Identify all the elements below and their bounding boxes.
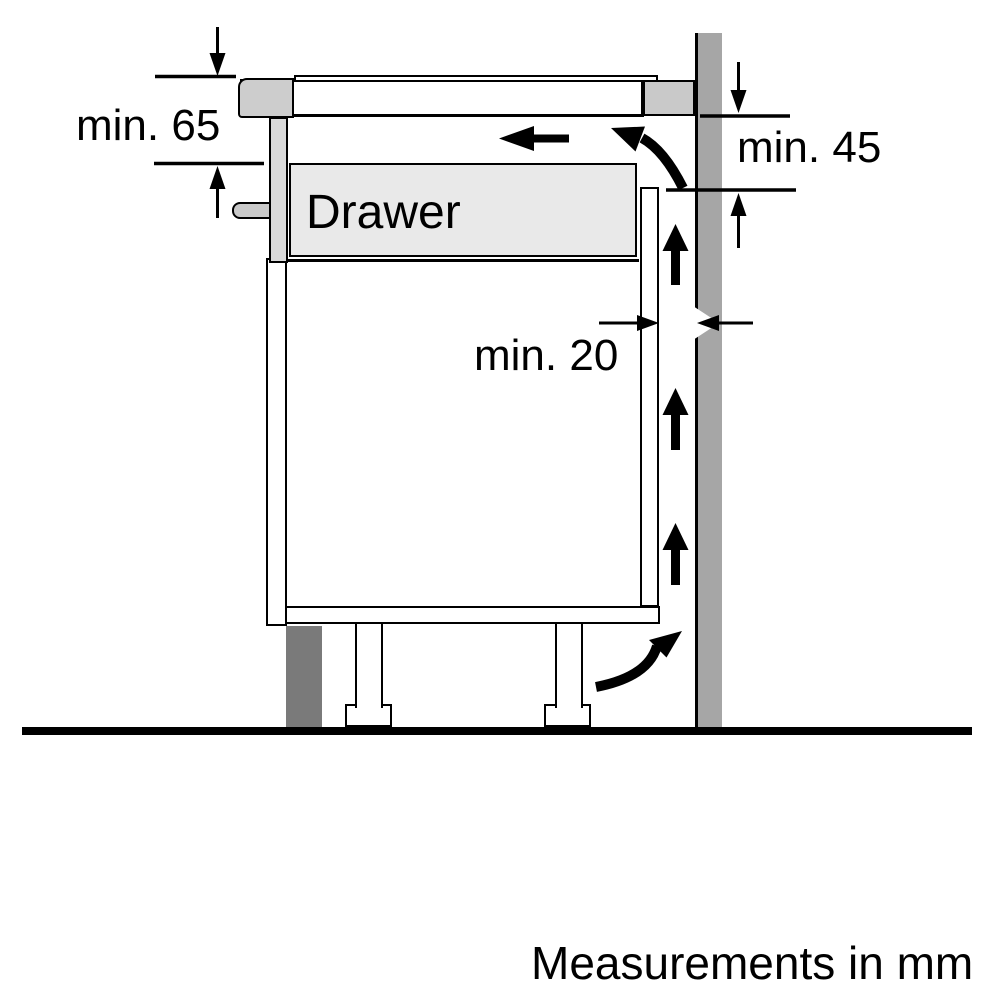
dimension-arrow-icon bbox=[731, 90, 747, 113]
airflow-arrow-icon bbox=[499, 126, 534, 151]
cabinet-side-panel-lower bbox=[266, 258, 287, 626]
airflow-arrow-icon bbox=[649, 631, 682, 658]
hob-glass-surface bbox=[294, 75, 658, 82]
rear-leg-stem bbox=[555, 624, 583, 708]
cabinet-side-panel-upper bbox=[269, 117, 288, 263]
airflow-curve bbox=[642, 138, 683, 188]
cabinet-back-vent-panel bbox=[640, 187, 659, 607]
dimension-label-min-20: min. 20 bbox=[474, 334, 618, 378]
airflow-arrow-icon bbox=[663, 224, 689, 251]
units-note: Measurements in mm bbox=[531, 940, 973, 986]
dimension-min-20 bbox=[599, 306, 753, 340]
dimension-arrow-icon bbox=[210, 53, 226, 76]
rear-filler-strip bbox=[643, 80, 695, 116]
wall bbox=[695, 33, 722, 727]
drawer-bottom-rail bbox=[287, 259, 639, 262]
handle-knob bbox=[232, 202, 271, 219]
airflow-arrow-icon bbox=[663, 523, 689, 550]
hob-front-trim bbox=[238, 78, 294, 118]
airflow-curve bbox=[596, 646, 657, 687]
front-leg-stem bbox=[355, 624, 383, 708]
drawer-label: Drawer bbox=[306, 189, 461, 237]
installation-diagram: min. 65 min. 45 min. 20 Drawer Measureme… bbox=[0, 0, 1000, 1000]
plinth bbox=[286, 626, 322, 727]
cabinet-bottom-panel bbox=[285, 606, 660, 624]
worktop bbox=[240, 79, 644, 117]
airflow-arrow-icon bbox=[663, 388, 689, 415]
floor-line bbox=[22, 727, 972, 735]
dimension-label-min-45: min. 45 bbox=[737, 126, 881, 170]
dimension-arrow-icon bbox=[731, 193, 747, 216]
dimension-label-min-65: min. 65 bbox=[76, 104, 220, 148]
airflow-arrow-icon bbox=[611, 127, 645, 152]
dimension-arrow-icon bbox=[210, 166, 226, 189]
